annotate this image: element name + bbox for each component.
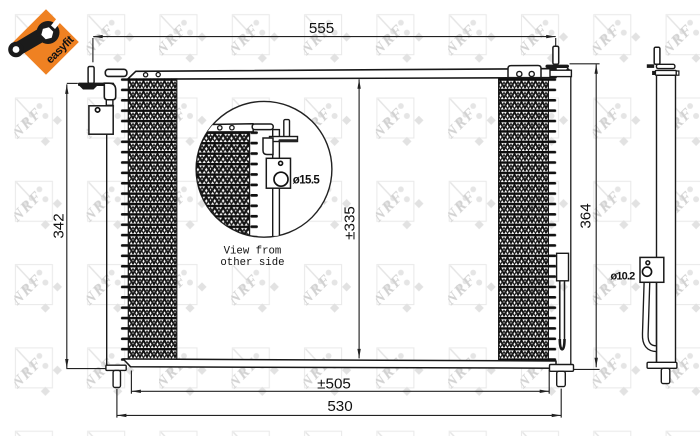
svg-text:342: 342	[51, 213, 68, 238]
svg-text:555: 555	[309, 20, 334, 37]
svg-text:other side: other side	[220, 257, 284, 269]
svg-text:View from: View from	[224, 245, 282, 257]
svg-text:ø10.2: ø10.2	[611, 270, 636, 282]
svg-text:ø15.5: ø15.5	[293, 175, 321, 187]
svg-text:364: 364	[578, 203, 595, 228]
svg-text:±335: ±335	[341, 206, 358, 240]
svg-text:530: 530	[327, 398, 352, 415]
svg-text:±505: ±505	[317, 375, 351, 392]
